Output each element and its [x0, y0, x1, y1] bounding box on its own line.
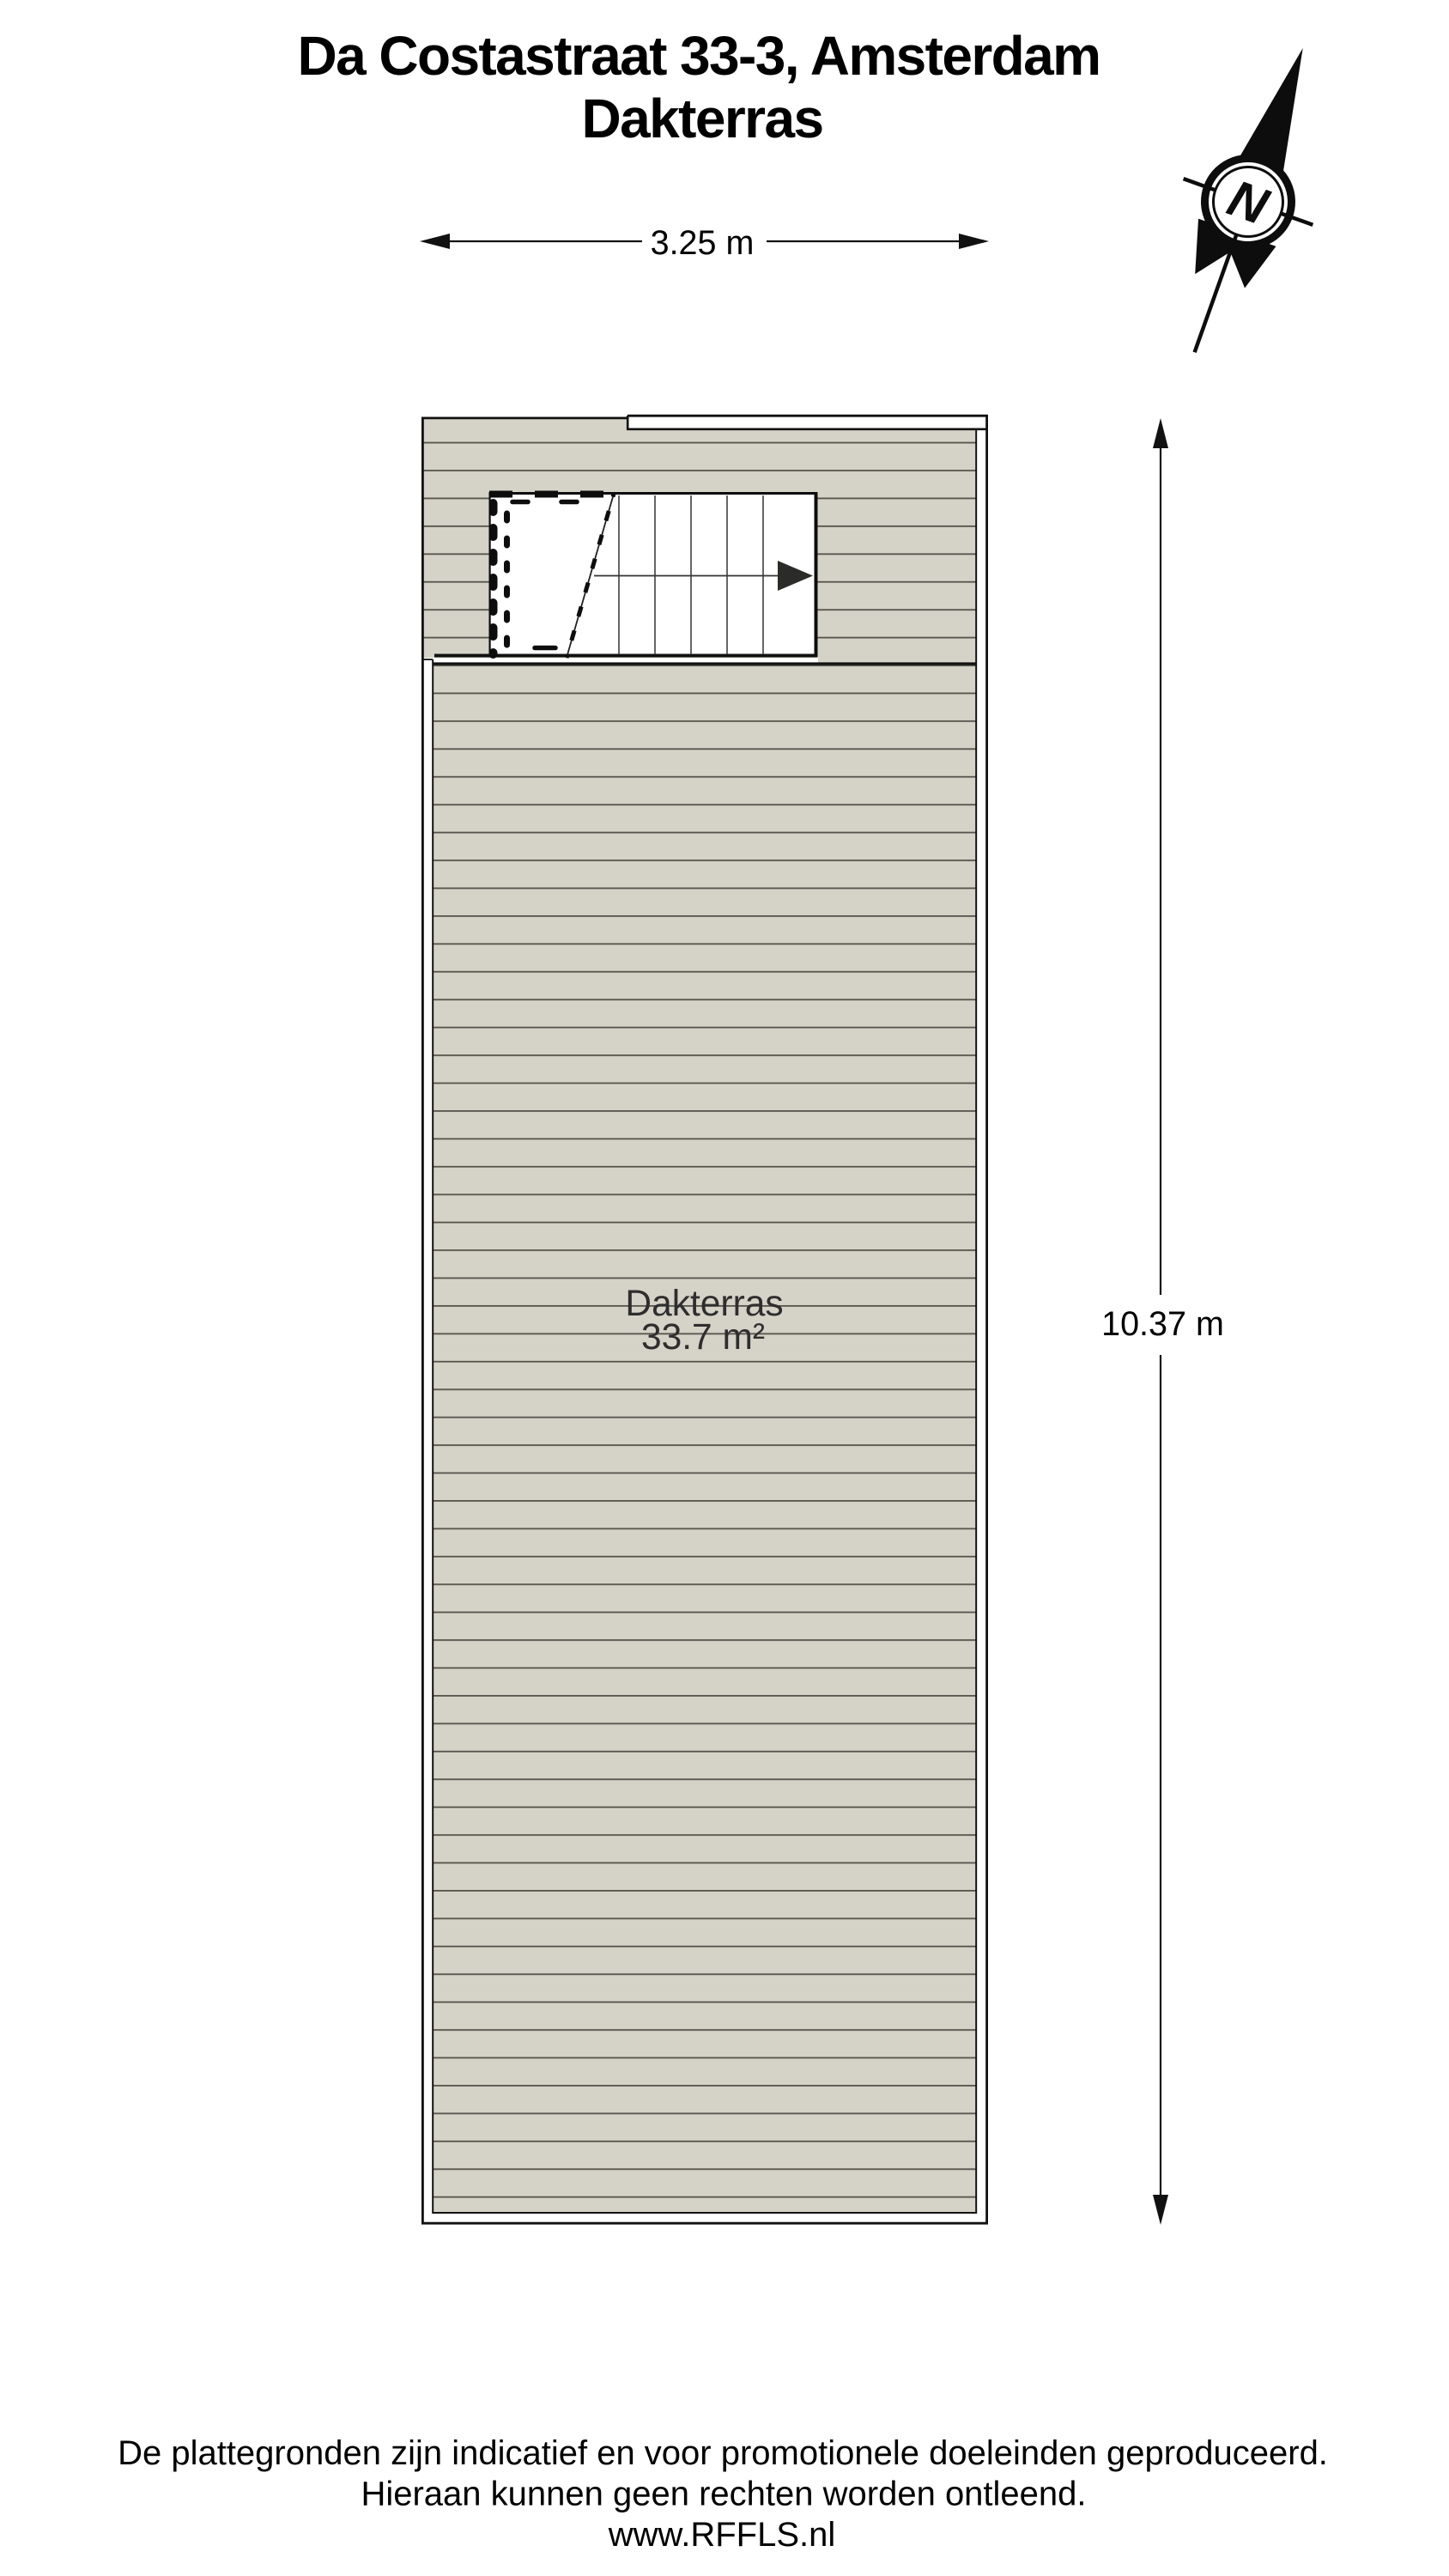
svg-text:Da Costastraat 33-3, Amsterdam: Da Costastraat 33-3, Amsterdam — [298, 25, 1100, 87]
svg-text:Dakterras: Dakterras — [582, 88, 823, 149]
svg-text:www.RFFLS.nl: www.RFFLS.nl — [608, 2516, 836, 2554]
svg-text:De plattegronden zijn indicati: De plattegronden zijn indicatief en voor… — [118, 2434, 1328, 2472]
svg-text:Hieraan kunnen geen rechten wo: Hieraan kunnen geen rechten worden ontle… — [361, 2476, 1086, 2513]
svg-text:33.7 m²: 33.7 m² — [641, 1317, 765, 1358]
svg-text:3.25 m: 3.25 m — [651, 224, 755, 262]
svg-text:10.37 m: 10.37 m — [1101, 1305, 1224, 1343]
